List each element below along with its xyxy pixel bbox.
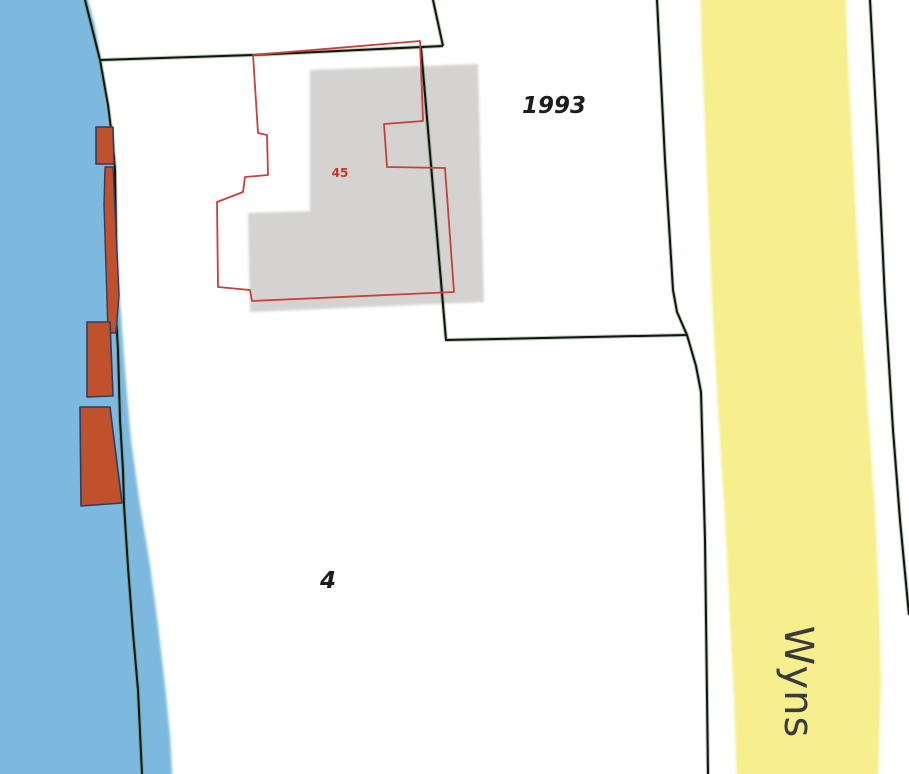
cadastral-map-canvas[interactable]: 1993445Wyns [0, 0, 909, 774]
road-label-wyns: Wyns [775, 626, 821, 739]
building-footprint-gray [248, 64, 484, 312]
map-viewport[interactable]: 1993445Wyns [0, 0, 909, 774]
building-label-45: 45 [332, 166, 349, 180]
boathouse-mid [87, 322, 113, 397]
parcel-label-4: 4 [319, 568, 336, 594]
boathouse-small [96, 127, 114, 164]
parcel-label-1993: 1993 [522, 93, 586, 119]
road-east-boundary [870, 0, 909, 615]
northeast-corner-boundary [433, 0, 443, 46]
